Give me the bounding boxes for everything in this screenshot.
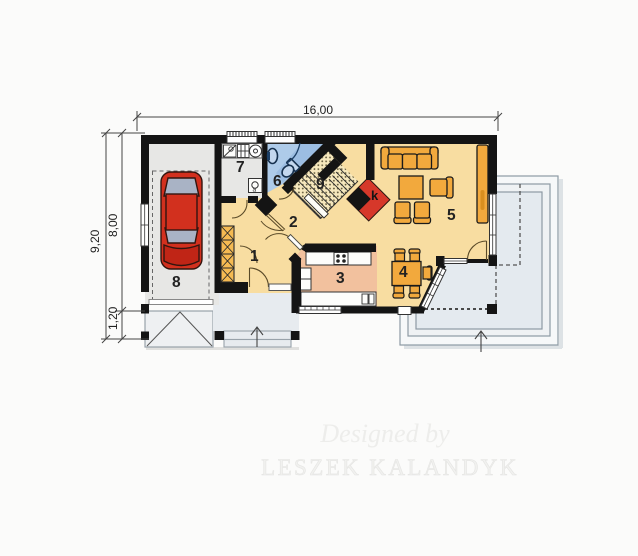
svg-text:6: 6 xyxy=(273,173,282,190)
svg-text:9,20: 9,20 xyxy=(88,229,102,253)
svg-text:1: 1 xyxy=(250,248,259,265)
svg-text:2: 2 xyxy=(289,214,298,231)
svg-text:k: k xyxy=(371,188,379,203)
svg-text:7: 7 xyxy=(236,159,245,176)
svg-text:16,00: 16,00 xyxy=(303,103,333,117)
svg-text:3: 3 xyxy=(336,270,345,287)
svg-text:1,20: 1,20 xyxy=(106,306,120,330)
svg-text:8: 8 xyxy=(172,274,181,291)
svg-text:Designed by: Designed by xyxy=(319,419,450,448)
svg-text:8,00: 8,00 xyxy=(106,213,120,237)
svg-text:4: 4 xyxy=(399,264,408,281)
svg-text:LESZEK KALANDYK: LESZEK KALANDYK xyxy=(261,455,519,480)
svg-text:5: 5 xyxy=(447,207,456,224)
svg-text:a: a xyxy=(253,187,257,194)
svg-text:9: 9 xyxy=(316,176,325,193)
